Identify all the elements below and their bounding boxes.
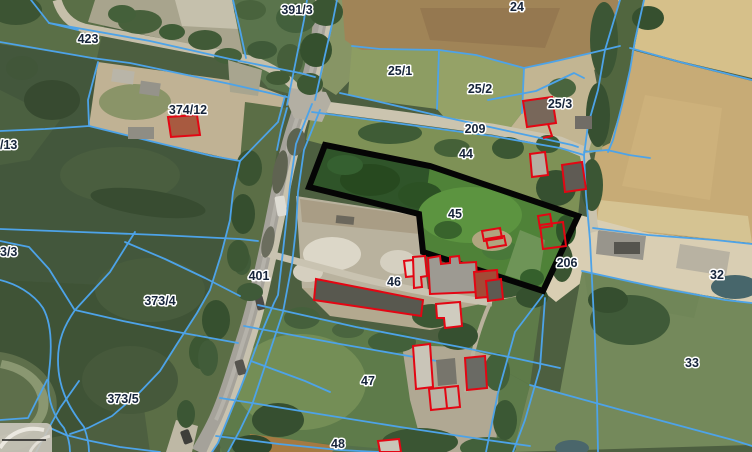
svg-text:3/3: 3/3 (0, 245, 17, 259)
svg-text:45: 45 (448, 207, 462, 221)
svg-text:423: 423 (78, 32, 99, 46)
svg-text:33: 33 (685, 356, 699, 370)
svg-text:/13: /13 (0, 138, 17, 152)
svg-text:391/3: 391/3 (281, 3, 312, 17)
svg-text:47: 47 (361, 374, 375, 388)
svg-text:25/1: 25/1 (388, 64, 412, 78)
svg-text:373/4: 373/4 (144, 294, 175, 308)
svg-text:373/5: 373/5 (107, 392, 138, 406)
svg-text:46: 46 (387, 275, 401, 289)
svg-text:374/12: 374/12 (169, 103, 207, 117)
svg-text:24: 24 (510, 0, 524, 14)
svg-text:25/3: 25/3 (548, 97, 572, 111)
svg-text:206: 206 (557, 256, 578, 270)
svg-text:209: 209 (465, 122, 486, 136)
svg-text:48: 48 (331, 437, 345, 451)
svg-text:25/2: 25/2 (468, 82, 492, 96)
svg-text:32: 32 (710, 268, 724, 282)
svg-text:44: 44 (459, 147, 473, 161)
svg-text:401: 401 (249, 269, 270, 283)
